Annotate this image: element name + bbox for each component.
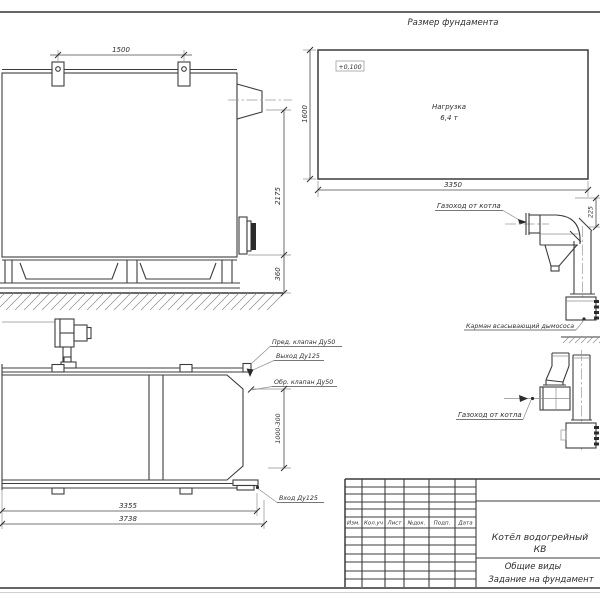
burner-nozzle [237,84,262,119]
lifting-lug [178,62,190,86]
foundation-title: Размер фундамента [408,18,499,28]
outlet-label: Выход Ду125 [276,353,320,360]
flue-label: Газоход от котла [458,411,522,419]
dim-height: 2175 [274,187,282,205]
inlet-label: Вход Ду125 [279,495,318,502]
safety-valve-label: Пред. клапан Ду50 [272,339,335,346]
doc-name-line1: Общие виды [505,562,562,572]
suction-pocket [566,297,599,321]
dim-lug-spacing: 1500 [112,46,130,54]
sheet-border-bottom [0,588,600,593]
col-list: Лист [387,521,403,527]
dim-base-height: 360 [274,267,282,281]
product-name-line2: КВ [534,544,547,555]
flue-duct-side-view: Газоход от котла [435,195,600,343]
flue-inlet-box [540,387,570,410]
ground-hatch [0,293,284,310]
title-block: Изм. Кол.уч Лист №док. Подп. Дата Котёл … [345,479,600,588]
elevation-mark: +0,100 [338,64,361,71]
side-flange-connection [239,217,256,254]
flue-duct-plan-view: Газоход от котла [456,350,599,450]
boiler-plan-view: Пред. клапан Ду50 Выход Ду125 Обр. клапа… [0,319,342,529]
support-frame [0,260,240,288]
load-label-line2: 6,4 т [440,114,458,122]
inlet-fitting [233,480,259,490]
boiler-side-view: 1500 [0,46,292,310]
drawing-sheet: 1500 [0,0,600,600]
doc-name-line2: Задание на фундамент [488,575,594,585]
load-label-line1: Нагрузка [432,103,466,111]
col-podp: Подп. [434,521,451,527]
dim-length-body: 3355 [119,502,137,510]
dim-offset: 225 [588,206,595,218]
col-izm: Изм. [347,521,360,527]
col-koluch: Кол.уч [364,521,384,527]
flue-end-box [561,423,599,448]
dim-nozzle-range: 1000-300 [275,413,282,443]
plan-burner-assembly [2,319,91,368]
leader-arrow [247,369,254,378]
drawing-canvas: 1500 [0,0,600,600]
col-ndok: №док. [407,521,426,527]
dim-length-total: 3738 [119,515,137,523]
lifting-lug [52,62,64,86]
pocket-label: Карман всасывающий дымососа [466,323,574,330]
product-name-line1: Котёл водогрейный [492,532,588,543]
leader-arrow [519,395,528,402]
dim-width: 3350 [444,181,462,189]
flue-label: Газоход от котла [437,202,501,210]
dim-depth: 1600 [301,105,309,123]
foundation-plan: Размер фундамента +0,100 Нагрузка 6,4 т … [301,18,591,197]
check-valve-label: Обр. клапан Ду50 [274,378,333,386]
col-data: Дата [457,521,473,527]
